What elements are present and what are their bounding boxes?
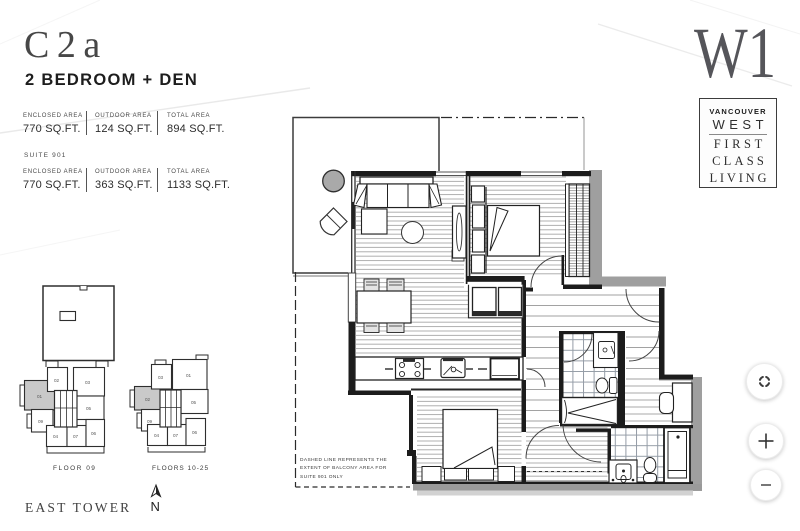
svg-text:03: 03 <box>158 375 164 380</box>
svg-text:02: 02 <box>145 397 151 402</box>
svg-text:07: 07 <box>173 433 179 438</box>
svg-text:09: 09 <box>147 419 153 424</box>
svg-text:N: N <box>151 499 160 514</box>
svg-text:06: 06 <box>192 430 198 435</box>
svg-text:04: 04 <box>53 434 59 439</box>
svg-text:04: 04 <box>154 433 160 438</box>
svg-text:06: 06 <box>91 431 97 436</box>
svg-text:01: 01 <box>186 373 192 378</box>
svg-text:05: 05 <box>86 406 92 411</box>
svg-text:05: 05 <box>191 400 197 405</box>
svg-text:02: 02 <box>54 378 60 383</box>
svg-text:01: 01 <box>37 394 43 399</box>
svg-text:03: 03 <box>85 380 91 385</box>
svg-text:07: 07 <box>73 434 79 439</box>
svg-text:09: 09 <box>38 419 44 424</box>
